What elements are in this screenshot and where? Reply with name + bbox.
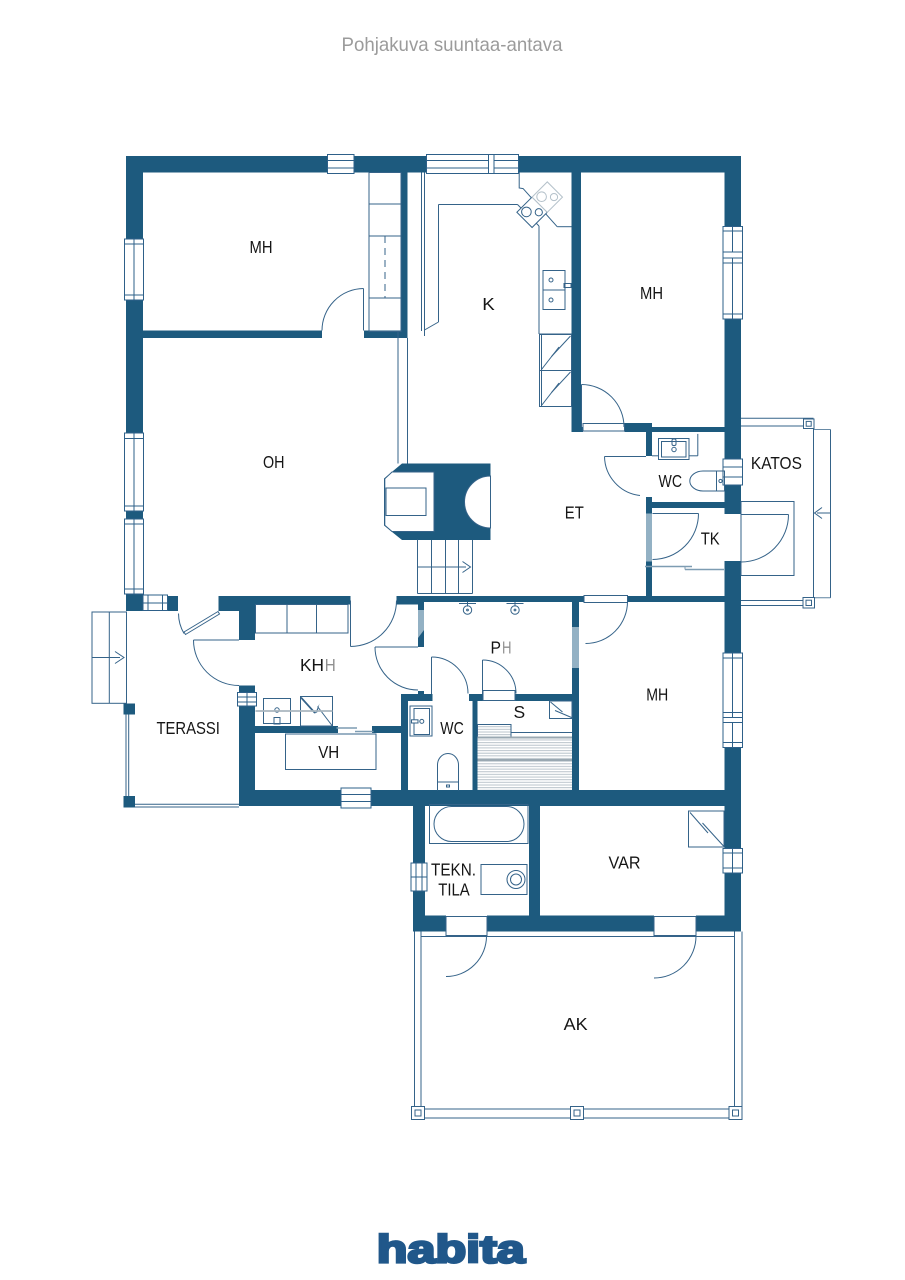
svg-text:MH: MH xyxy=(640,283,663,303)
svg-text:KATOS: KATOS xyxy=(751,453,802,473)
svg-text:H: H xyxy=(502,638,512,658)
svg-text:TEKN.: TEKN. xyxy=(431,860,476,880)
svg-text:VAR: VAR xyxy=(609,853,641,873)
svg-text:MH: MH xyxy=(646,685,668,705)
svg-text:VH: VH xyxy=(318,742,339,762)
svg-text:AK: AK xyxy=(564,1014,588,1034)
svg-text:Pohjakuva suuntaa-antava: Pohjakuva suuntaa-antava xyxy=(342,34,563,56)
svg-text:KH: KH xyxy=(300,655,324,675)
svg-text:habita: habita xyxy=(377,1229,525,1272)
svg-text:K: K xyxy=(482,294,495,314)
svg-text:H: H xyxy=(325,655,336,675)
svg-text:P: P xyxy=(491,638,502,658)
svg-text:MH: MH xyxy=(250,237,273,257)
svg-text:WC: WC xyxy=(659,471,683,491)
svg-text:WC: WC xyxy=(440,718,464,738)
svg-text:ET: ET xyxy=(565,503,584,523)
svg-text:S: S xyxy=(513,702,525,722)
svg-text:TERASSI: TERASSI xyxy=(156,718,220,738)
svg-text:OH: OH xyxy=(263,452,285,472)
svg-text:TK: TK xyxy=(701,529,720,549)
svg-text:TILA: TILA xyxy=(438,880,470,900)
